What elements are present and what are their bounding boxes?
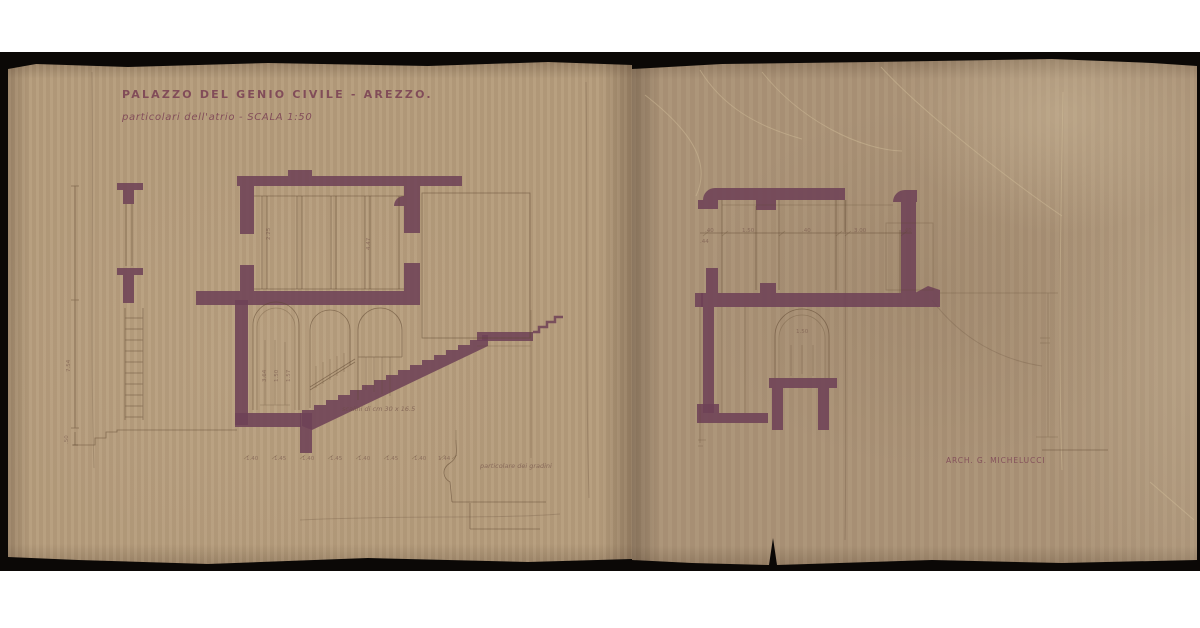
dim-label: .50 [64, 435, 70, 444]
drawing-title: PALAZZO DEL GENIO CIVILE - AREZZO. [122, 88, 433, 101]
dim-label: 7.54 [66, 360, 72, 372]
dim-label: .40 [802, 228, 811, 234]
dim-label: 1.40 [414, 456, 426, 462]
stair-dimension-note: scalini di cm 30 x 16.5 [342, 405, 415, 413]
dim-label: 1.45 [386, 456, 398, 462]
dim-label: .40 [903, 228, 912, 234]
dim-label: 3.00 [854, 228, 866, 234]
dim-label: 1.40 [246, 456, 258, 462]
dim-label: 1.50 [796, 329, 808, 335]
dim-label: 1.50 [274, 370, 280, 382]
dim-label: 2.25 [266, 228, 272, 240]
dim-label: 1.40 [358, 456, 370, 462]
drawing-subtitle: particolari dell'atrio - SCALA 1:50 [122, 112, 312, 123]
step-detail-label: particolare dei gradini [480, 462, 552, 470]
dim-label: .44 [700, 239, 709, 245]
architect-signature: ARCH. G. MICHELUCCI [946, 456, 1045, 465]
dim-label: 1.50 [742, 228, 754, 234]
paper-sheet-left [8, 61, 632, 564]
dim-label: .40 [705, 228, 714, 234]
scanned-drawing-page: PALAZZO DEL GENIO CIVILE - AREZZO. parti… [0, 0, 1200, 628]
dim-label: 1.40 [302, 456, 314, 462]
dim-label: 1.57 [286, 370, 292, 382]
dim-label: 4.47 [366, 238, 372, 250]
dim-label: 1.45 [330, 456, 342, 462]
paper-sheet-right [632, 59, 1197, 566]
dim-label: 3.64 [262, 370, 268, 382]
dim-label: 1.45 [274, 456, 286, 462]
dim-label: 1.44 [438, 456, 450, 462]
